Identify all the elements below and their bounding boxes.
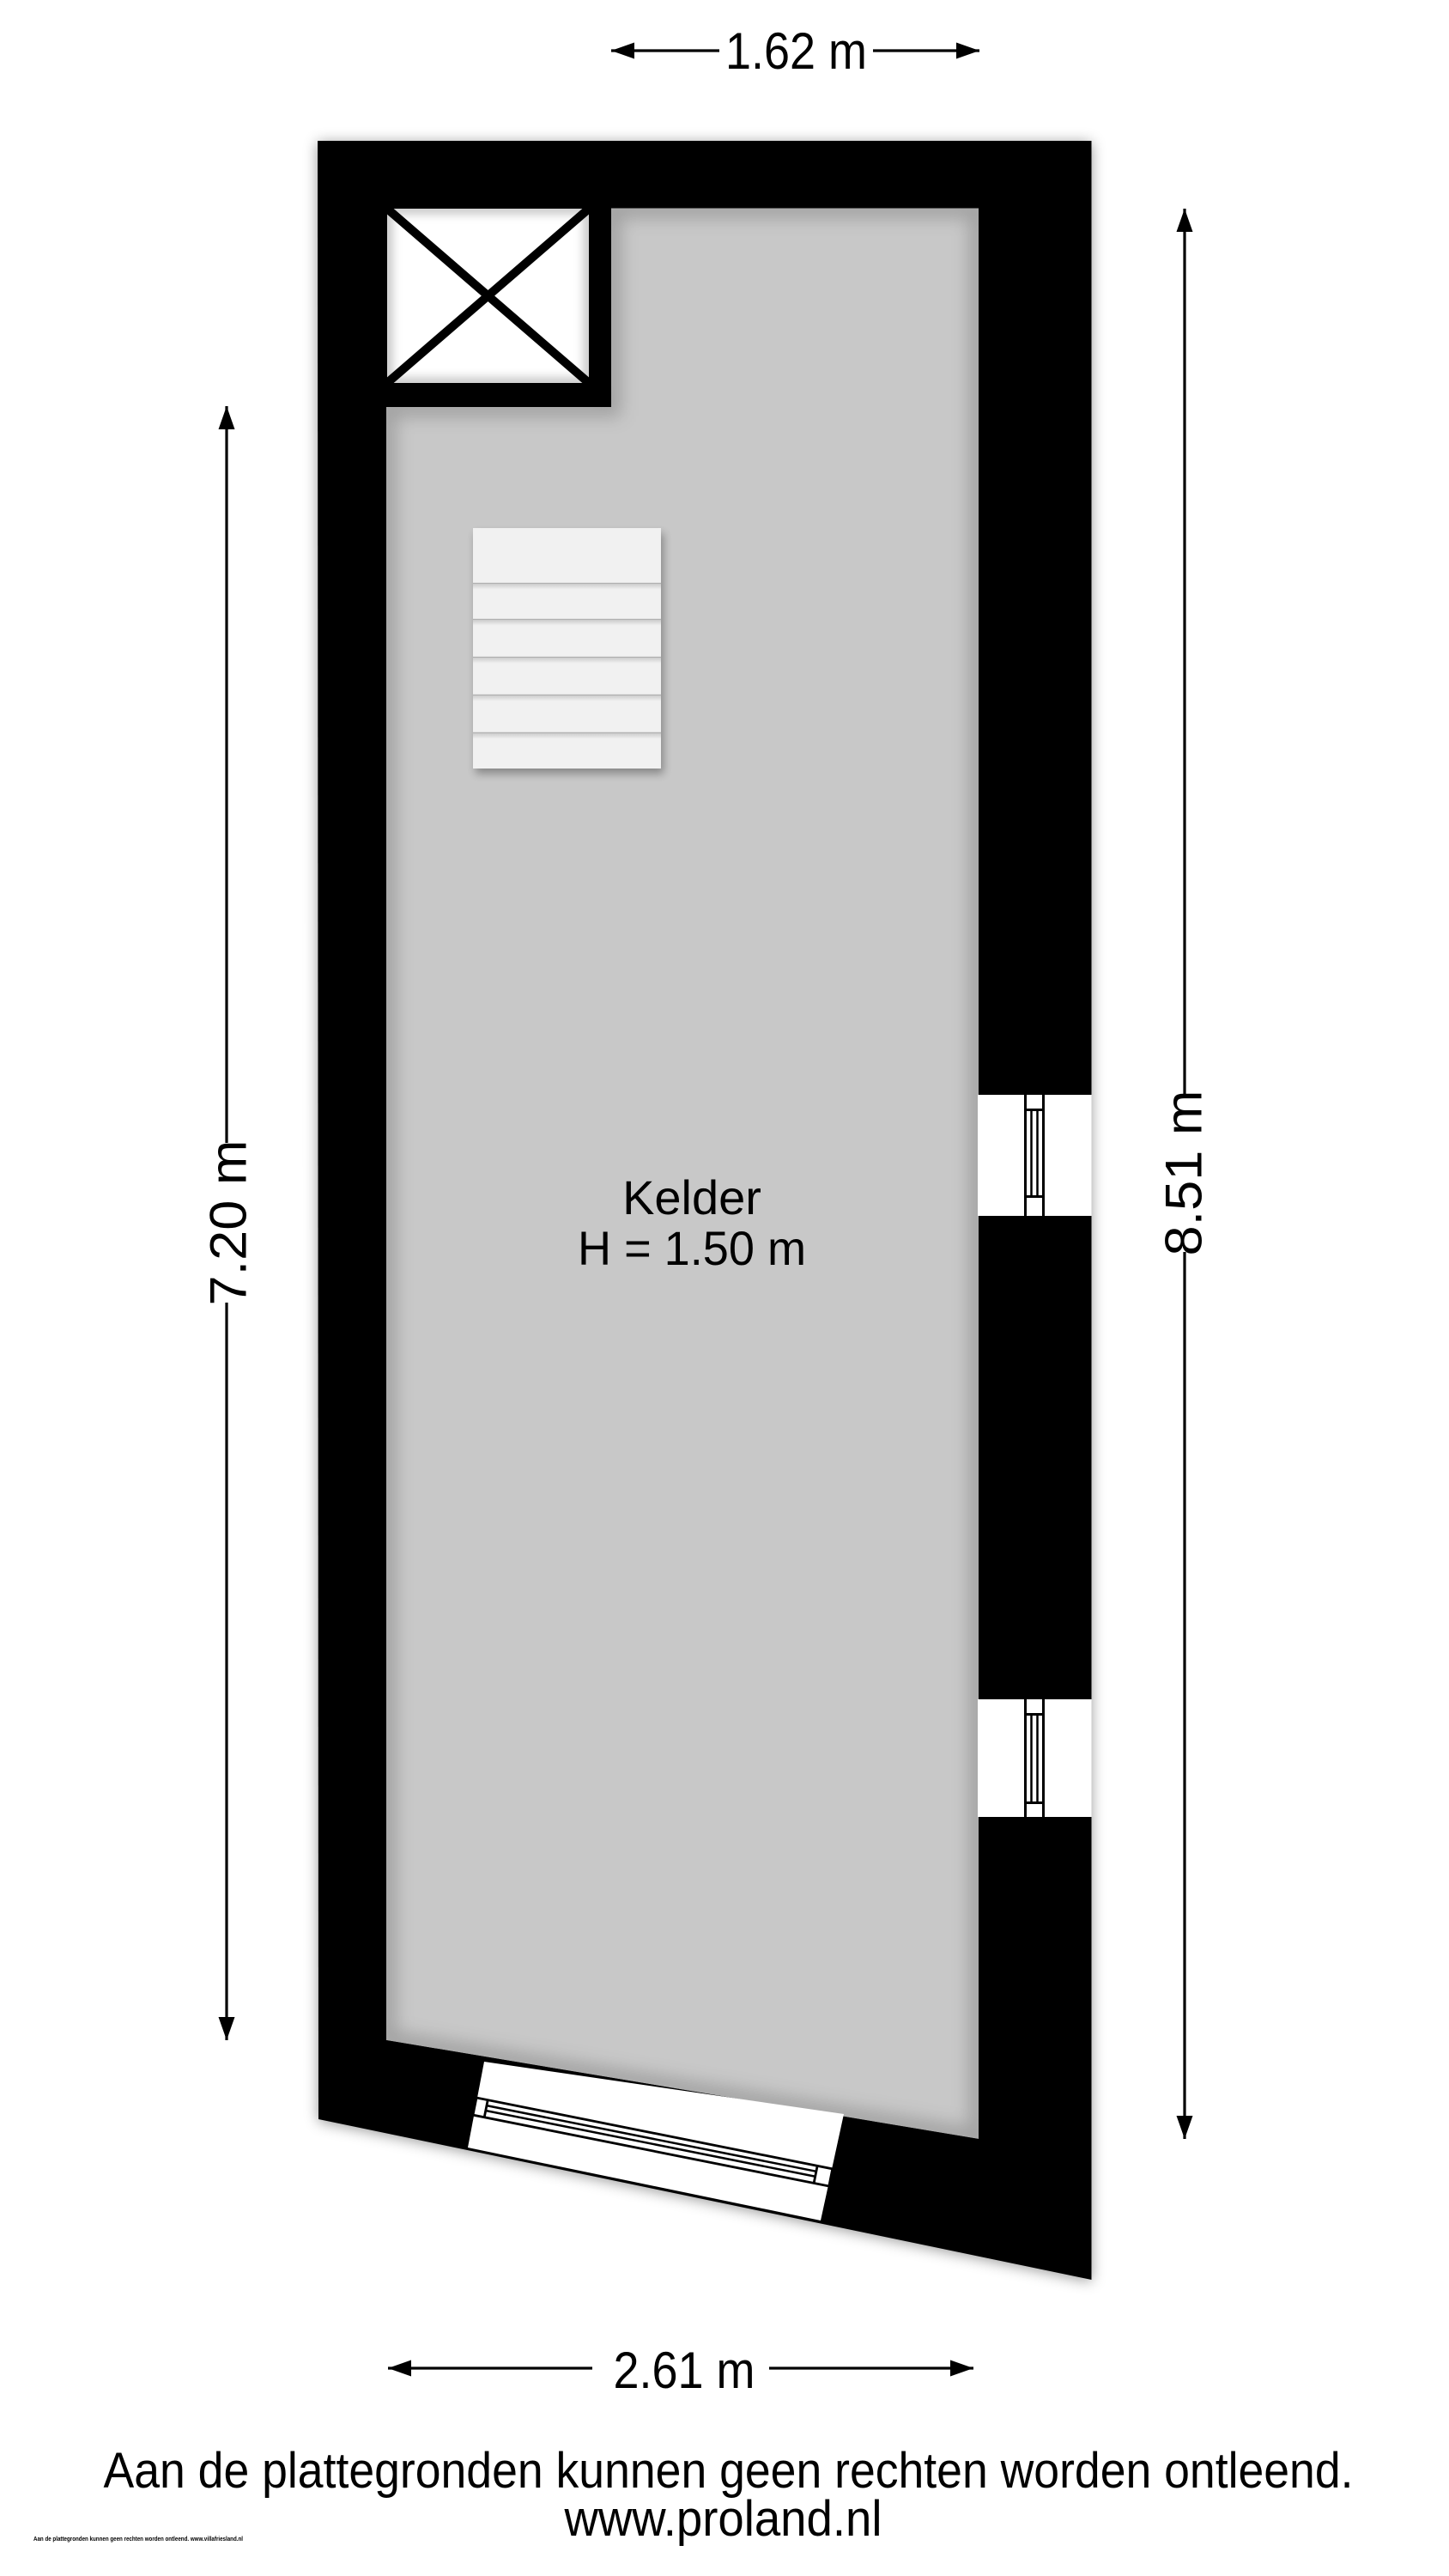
svg-text:7.20 m: 7.20 m [200, 1140, 258, 1306]
svg-text:Kelder: Kelder [622, 1170, 761, 1224]
svg-text:www.proland.nl: www.proland.nl [564, 2491, 882, 2547]
svg-text:H = 1.50 m: H = 1.50 m [578, 1221, 806, 1275]
svg-text:Aan de plattegronden kunnen ge: Aan de plattegronden kunnen geen rechten… [33, 2535, 243, 2543]
svg-text:8.51 m: 8.51 m [1155, 1091, 1213, 1256]
svg-text:1.62 m: 1.62 m [725, 22, 867, 80]
svg-text:2.61 m: 2.61 m [614, 2342, 755, 2399]
